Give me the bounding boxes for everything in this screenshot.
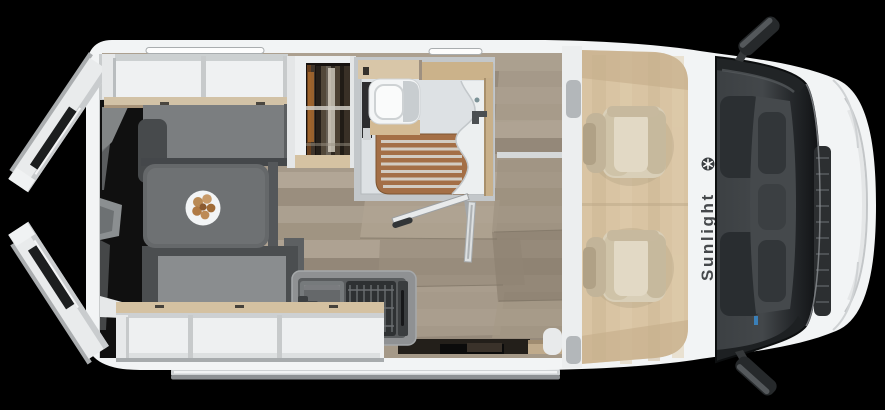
svg-text:Sunlight: Sunlight bbox=[698, 192, 717, 281]
